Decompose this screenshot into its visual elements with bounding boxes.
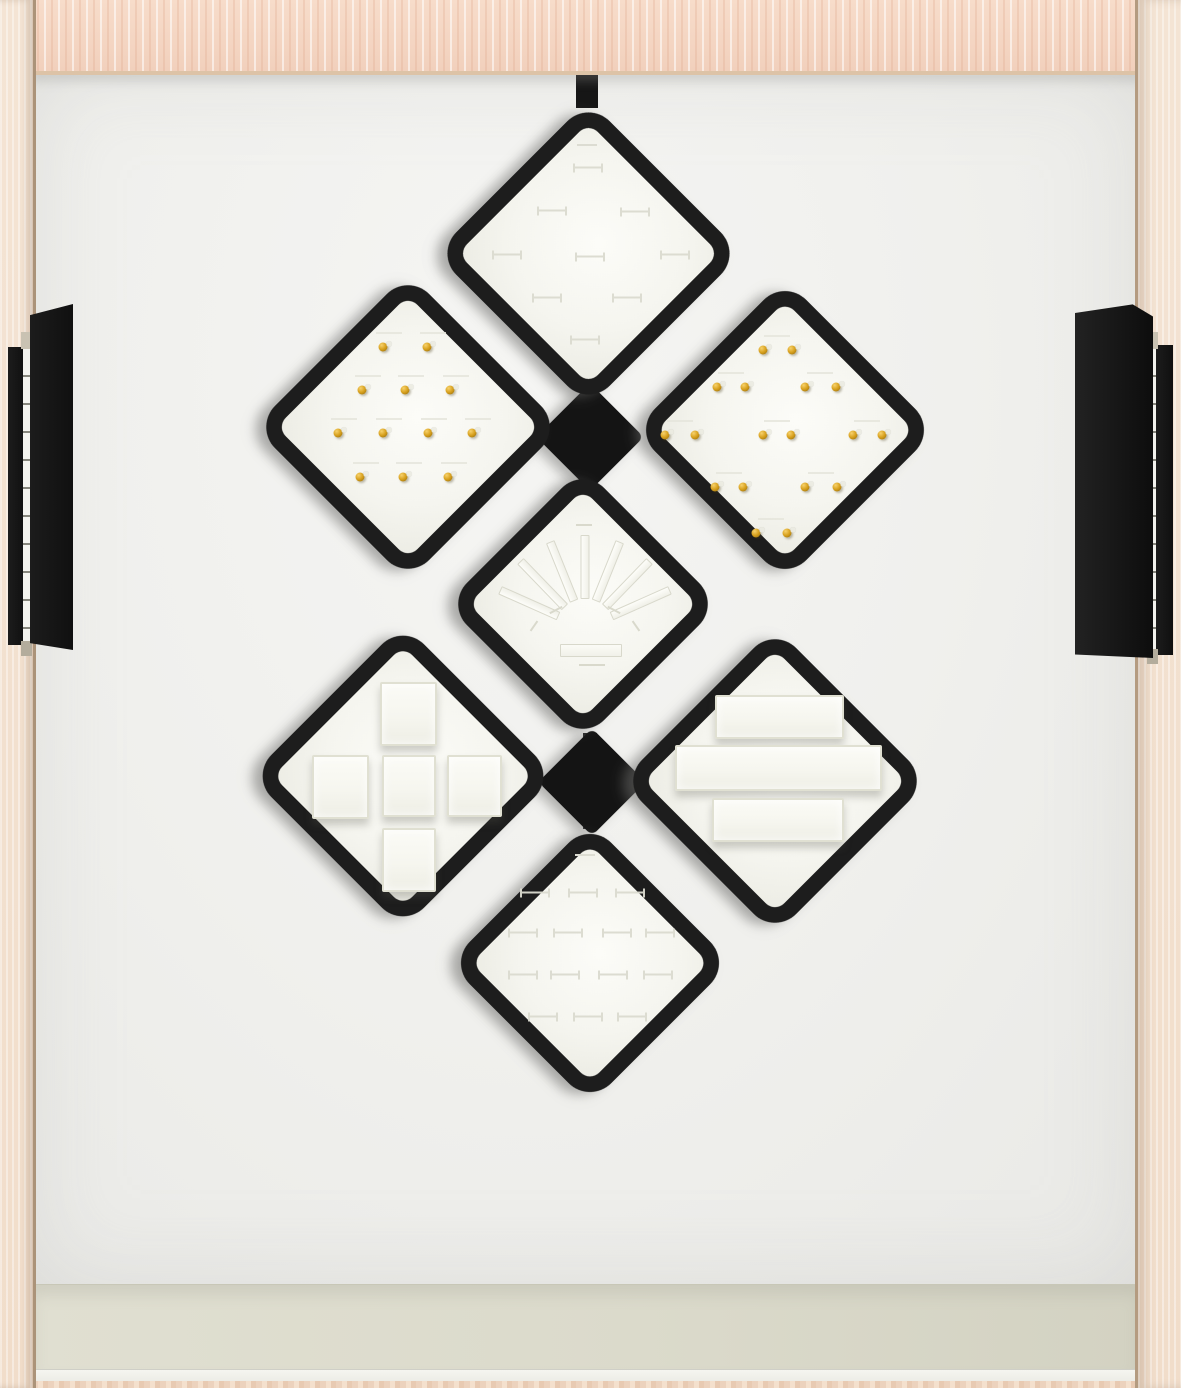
right-wood-wall — [1135, 0, 1181, 1388]
left-hinge-main-bar — [30, 304, 73, 650]
left-wood-wall — [0, 0, 36, 1388]
floor-shelf — [33, 1284, 1138, 1371]
left-hinge-pin-strip — [23, 349, 30, 641]
top-wood-panel — [30, 0, 1143, 75]
right-hinge-main-bar — [1075, 303, 1153, 658]
right-hinge-outer-bar — [1156, 345, 1173, 655]
bottom-wood-strip — [0, 1381, 1181, 1388]
jewelry-drawer-photo — [0, 0, 1181, 1388]
